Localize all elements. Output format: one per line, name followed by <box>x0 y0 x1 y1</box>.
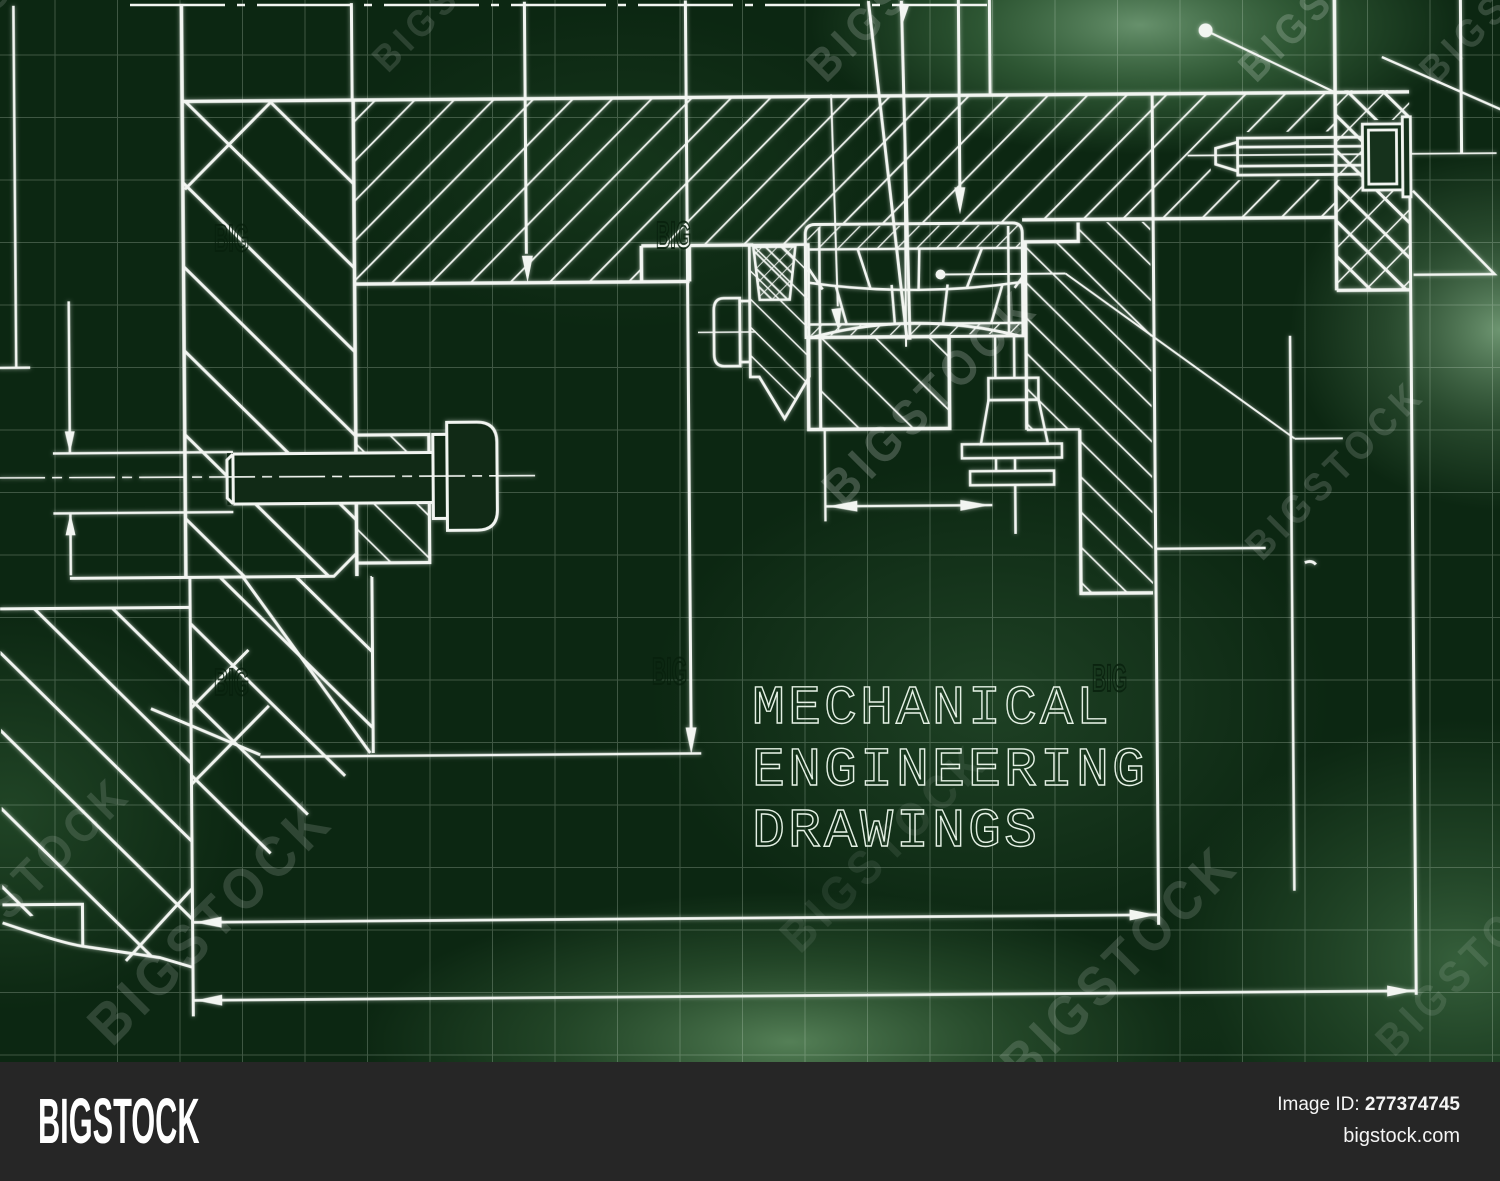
svg-text:BIG: BIG <box>214 662 249 703</box>
svg-text:ENGINEERING: ENGINEERING <box>752 739 1148 802</box>
svg-text:BIGSTOCK: BIGSTOCK <box>38 1086 200 1157</box>
svg-text:DRAWINGS: DRAWINGS <box>752 800 1040 863</box>
svg-text:Image ID: 277374745: Image ID: 277374745 <box>1277 1094 1460 1115</box>
svg-text:BIG: BIG <box>214 218 249 259</box>
svg-text:bigstock.com: bigstock.com <box>1343 1125 1460 1147</box>
svg-text:MECHANICAL: MECHANICAL <box>752 677 1112 740</box>
svg-text:BIG: BIG <box>652 651 687 692</box>
svg-text:BIG: BIG <box>656 215 691 256</box>
